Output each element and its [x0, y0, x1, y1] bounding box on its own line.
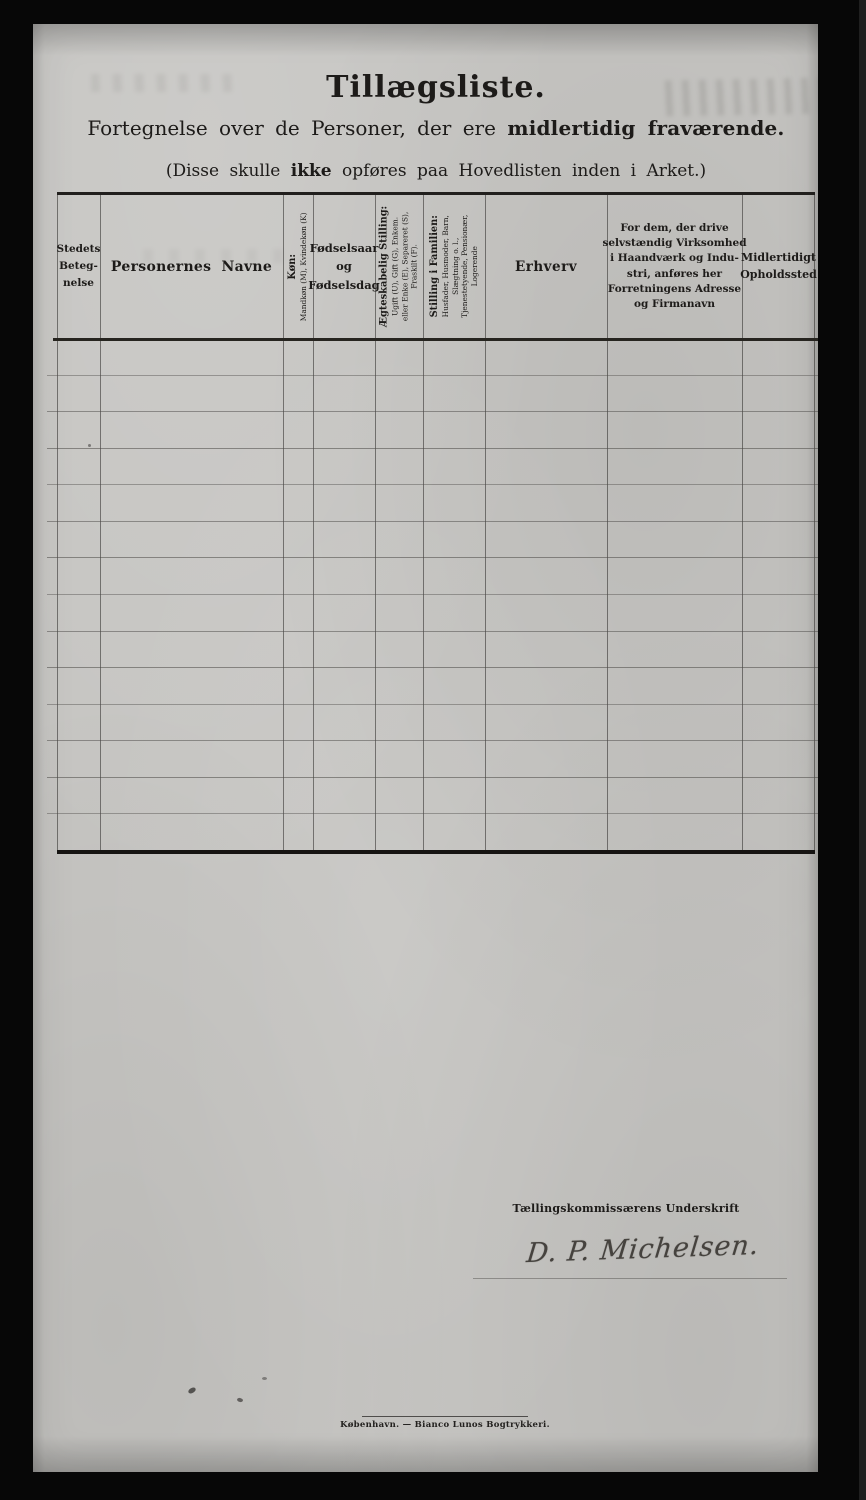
- table-row: [57, 411, 815, 448]
- column-header-subline: Mandkøn (M), Kvindekøn (K): [299, 199, 309, 335]
- column-header-line: Forretningens Adresse: [608, 282, 741, 297]
- column-header-stilling-i-familien: Stilling i Familien:Husfader, Husmoder, …: [424, 195, 484, 338]
- scan-background: Tillægsliste. Fortegnelse over de Person…: [0, 0, 866, 1500]
- table-grid-rowline: [47, 411, 818, 412]
- column-header-subline: Slægtning o. l.,: [450, 199, 460, 335]
- table-row: [57, 631, 815, 668]
- table-row: [57, 777, 815, 814]
- note-bold: ikke: [291, 161, 332, 181]
- signature-label: Tællingskommissærens Underskrift: [481, 1202, 771, 1215]
- column-header-personernes-navne: Personernes Navne: [101, 195, 282, 338]
- scanner-edge-strip: [859, 0, 866, 1500]
- imprint-rule: [362, 1416, 528, 1417]
- page-title: Tillægsliste.: [57, 70, 815, 105]
- column-header-aegteskabelig-stilling: Ægteskabelig Stilling:Ugift (U), Gift (G…: [376, 195, 422, 338]
- column-header-subline: Logerende: [470, 199, 480, 335]
- column-header-fodselsaar-og-fodselsdag: FødselsaarogFødselsdag: [314, 195, 374, 338]
- table-grid-rowline: [47, 594, 818, 595]
- column-header-subline: eller Enke (E), Separeret (S),: [400, 199, 410, 335]
- subtitle-regular: Fortegnelse over de Personer, der ere: [87, 116, 496, 140]
- table-grid-rowline: [47, 631, 818, 632]
- table-grid-rowline: [47, 704, 818, 705]
- column-header-line: Opholdssted: [740, 267, 817, 284]
- column-header-subline: Husfader, Husmoder, Barn,: [441, 199, 451, 335]
- ink-speck: [262, 1377, 267, 1380]
- table-grid-rowline: [47, 375, 818, 376]
- table-row: [57, 740, 815, 777]
- column-header-line: i Haandværk og Indu-: [610, 251, 739, 266]
- column-header-line: nelse: [63, 275, 94, 292]
- table-row: [57, 704, 815, 741]
- table-row: [57, 521, 815, 558]
- column-header-subline: Ugift (U), Gift (G), Enkem.: [391, 199, 401, 335]
- table-grid-rowline: [47, 521, 818, 522]
- column-header-line: Stedets: [57, 241, 101, 258]
- column-header-subline: Tjenestetyende, Pensionær,: [460, 199, 470, 335]
- column-header-kon: Køn:Mandkøn (M), Kvindekøn (K): [284, 195, 312, 338]
- column-header-line: For dem, der drive: [620, 221, 728, 236]
- column-header-midlertidigt-opholdssted: MidlertidigtOpholdssted: [743, 195, 814, 338]
- table-row: [57, 594, 815, 631]
- ink-speck: [187, 1386, 196, 1394]
- note-post: opføres paa Hovedlisten inden i Arket.): [342, 161, 706, 181]
- column-header-erhverv: Erhverv: [486, 195, 606, 338]
- ink-speck: [237, 1397, 244, 1402]
- column-header-line: Erhverv: [515, 259, 577, 275]
- table-row: [57, 667, 815, 704]
- column-header-line: Beteg-: [59, 258, 98, 275]
- column-header-stedets-betegnelse: StedetsBeteg-nelse: [58, 195, 99, 338]
- table-grid-rowline: [47, 484, 818, 485]
- census-form-page: Tillægsliste. Fortegnelse over de Person…: [33, 24, 818, 1472]
- signature-handwriting: D. P. Michelsen.: [491, 1229, 794, 1271]
- table-grid-rowline: [47, 448, 818, 449]
- table-grid-rowline: [47, 557, 818, 558]
- ink-speck: [88, 444, 91, 447]
- column-header-subline: Fraskilt (F).: [410, 199, 420, 335]
- census-table: StedetsBeteg-nelsePersonernes NavneKøn:M…: [57, 192, 815, 854]
- table-row: [57, 557, 815, 594]
- signature-line: [473, 1278, 787, 1279]
- table-grid-rowline: [47, 813, 818, 814]
- printer-imprint: København. — Bianco Lunos Bogtrykkeri.: [332, 1420, 558, 1430]
- column-header-title: Stilling i Familien:: [429, 199, 440, 335]
- column-header-line: og: [336, 257, 352, 275]
- table-row: [57, 448, 815, 485]
- subtitle-bold: midlertidig fraværende.: [507, 116, 784, 140]
- column-header-line: Personernes Navne: [111, 259, 272, 275]
- table-row: [57, 484, 815, 521]
- column-header-line: Midlertidigt: [741, 250, 816, 267]
- table-grid-rowline: [47, 777, 818, 778]
- table-grid-rowline: [47, 740, 818, 741]
- column-header-virksomhed-adresse-firmanavn: For dem, der driveselvstændig Virksomhed…: [608, 195, 741, 338]
- table-row: [57, 375, 815, 412]
- page-note: (Disse skulle ikke opføres paa Hovedlist…: [57, 161, 815, 181]
- column-header-line: selvstændig Virksomhed: [602, 236, 746, 251]
- column-header-title: Køn:: [287, 199, 298, 335]
- column-header-line: stri, anføres her: [627, 267, 722, 282]
- column-header-title: Ægteskabelig Stilling:: [379, 199, 390, 335]
- column-header-line: Fødselsdag: [308, 276, 379, 294]
- column-header-line: og Firmanavn: [634, 297, 715, 312]
- table-row: [57, 813, 815, 850]
- column-header-line: Fødselsaar: [310, 239, 379, 257]
- note-pre: (Disse skulle: [166, 161, 281, 181]
- page-subtitle: Fortegnelse over de Personer, der ere mi…: [57, 116, 815, 140]
- table-grid-rowline: [47, 667, 818, 668]
- table-row: [57, 338, 815, 375]
